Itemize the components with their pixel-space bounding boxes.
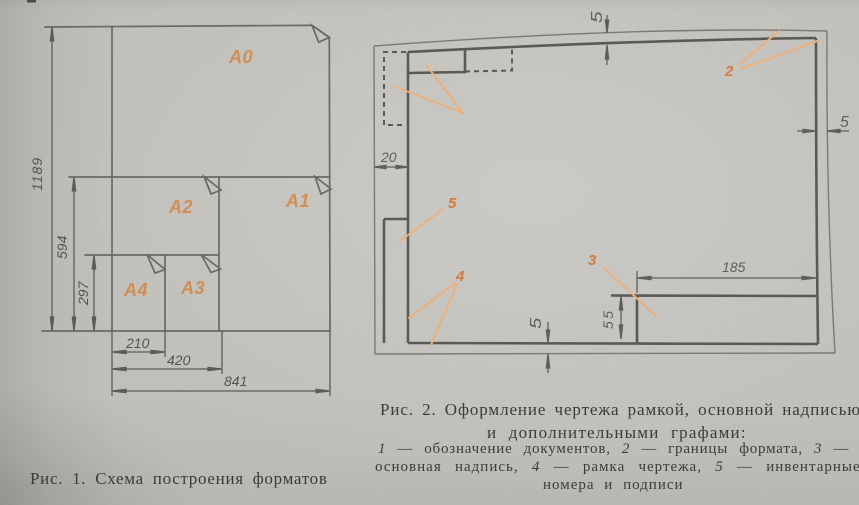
svg-text:55: 55 [600,308,616,329]
svg-text:5: 5 [588,10,606,23]
svg-text:1189: 1189 [29,157,45,191]
svg-text:185: 185 [722,259,746,275]
svg-text:210: 210 [125,335,150,351]
svg-text:4: 4 [455,268,465,285]
svg-text:297: 297 [75,280,91,306]
svg-text:20: 20 [380,149,397,165]
svg-text:5: 5 [448,195,457,212]
svg-text:841: 841 [224,373,247,389]
svg-text:A1: A1 [285,191,310,211]
svg-text:3: 3 [588,252,597,269]
svg-text:A4: A4 [123,280,148,300]
svg-text:5: 5 [527,317,544,329]
svg-text:594: 594 [54,235,70,259]
svg-text:A3: A3 [180,278,205,298]
svg-text:A2: A2 [168,197,193,217]
svg-text:5: 5 [840,114,849,131]
svg-text:A0: A0 [228,47,253,67]
svg-text:2: 2 [724,63,734,80]
svg-text:420: 420 [167,352,191,368]
